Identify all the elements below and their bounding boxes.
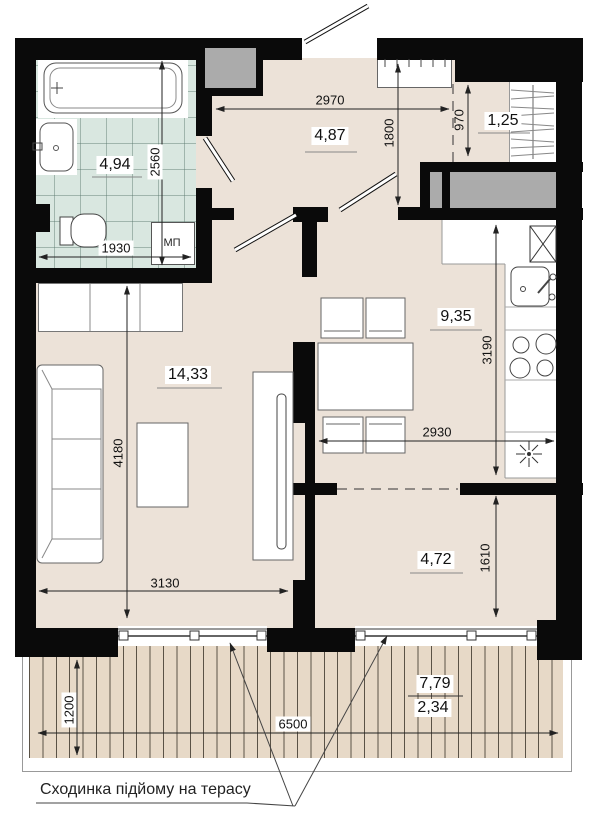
dim-hall-width: 2970 <box>316 93 345 108</box>
dim-closet-width: 970 <box>452 109 467 131</box>
room-area-bathroom: 4,94 <box>96 156 133 174</box>
wall-bottom-right <box>537 620 582 660</box>
wall-partition-3 <box>305 423 315 580</box>
sink-zone <box>36 119 77 175</box>
kitchen-counter-right <box>505 220 556 478</box>
wall-bath-notch <box>36 204 50 232</box>
wall-left <box>15 38 36 628</box>
coat-rack <box>377 58 452 88</box>
dim-living-width: 3130 <box>151 576 180 591</box>
terrace-decking <box>29 646 563 758</box>
wall-partition-2 <box>293 342 315 423</box>
cabinet-row <box>38 283 183 332</box>
room-area-closet: 1,25 <box>484 112 521 130</box>
room-area-room: 4,72 <box>417 551 454 569</box>
dim-room-depth: 1610 <box>478 544 493 573</box>
wall-room-top <box>460 483 583 495</box>
vent-shaft-large <box>450 172 556 208</box>
dim-kitchen-depth: 3190 <box>480 336 495 365</box>
wall-bottom-left <box>15 628 118 657</box>
wall-bath-bottom <box>15 268 212 283</box>
dim-hall-depth: 1800 <box>382 119 397 148</box>
wall-bottom-mid <box>267 628 355 652</box>
wall-hall-stub-left <box>212 208 234 220</box>
wall-hall-stub-right <box>398 207 422 220</box>
wall-partition-1 <box>302 220 317 277</box>
terrace-area-reduced: 2,34 <box>414 699 451 717</box>
wall-shaft-divider <box>442 172 450 208</box>
dim-bath-depth: 2560 <box>148 145 163 180</box>
bathtub-zone <box>38 58 188 118</box>
room-area-living: 14,33 <box>165 366 211 384</box>
vent-shaft-small <box>430 172 442 208</box>
dim-kitchen-width: 2930 <box>423 425 452 440</box>
floor-plan: 2970 1800 970 2560 1930 4180 3130 3190 2… <box>0 0 600 816</box>
wall-shaft-bottom <box>420 208 583 220</box>
dim-terrace-width: 6500 <box>276 717 311 732</box>
dim-living-depth: 4180 <box>111 439 126 468</box>
terrace-step-note: Сходинка підйому на терасу <box>40 781 251 799</box>
wall-partition-4 <box>293 580 315 628</box>
room-area-kitchen: 9,35 <box>437 308 474 326</box>
washing-machine-label: МП <box>163 237 180 249</box>
wall-top-right-band <box>455 38 583 82</box>
terrace-area-full: 7,79 <box>416 675 453 693</box>
vent-shaft-entry <box>205 48 256 88</box>
dim-bath-width: 1930 <box>99 241 134 256</box>
wall-closet-bottom <box>420 162 583 172</box>
window-room <box>355 626 537 645</box>
dim-terrace-depth: 1200 <box>62 693 77 728</box>
room-area-hallway: 4,87 <box>311 127 348 145</box>
window-living <box>118 626 267 645</box>
entry-door-leaf <box>305 6 368 42</box>
wall-room-stub <box>290 483 337 495</box>
